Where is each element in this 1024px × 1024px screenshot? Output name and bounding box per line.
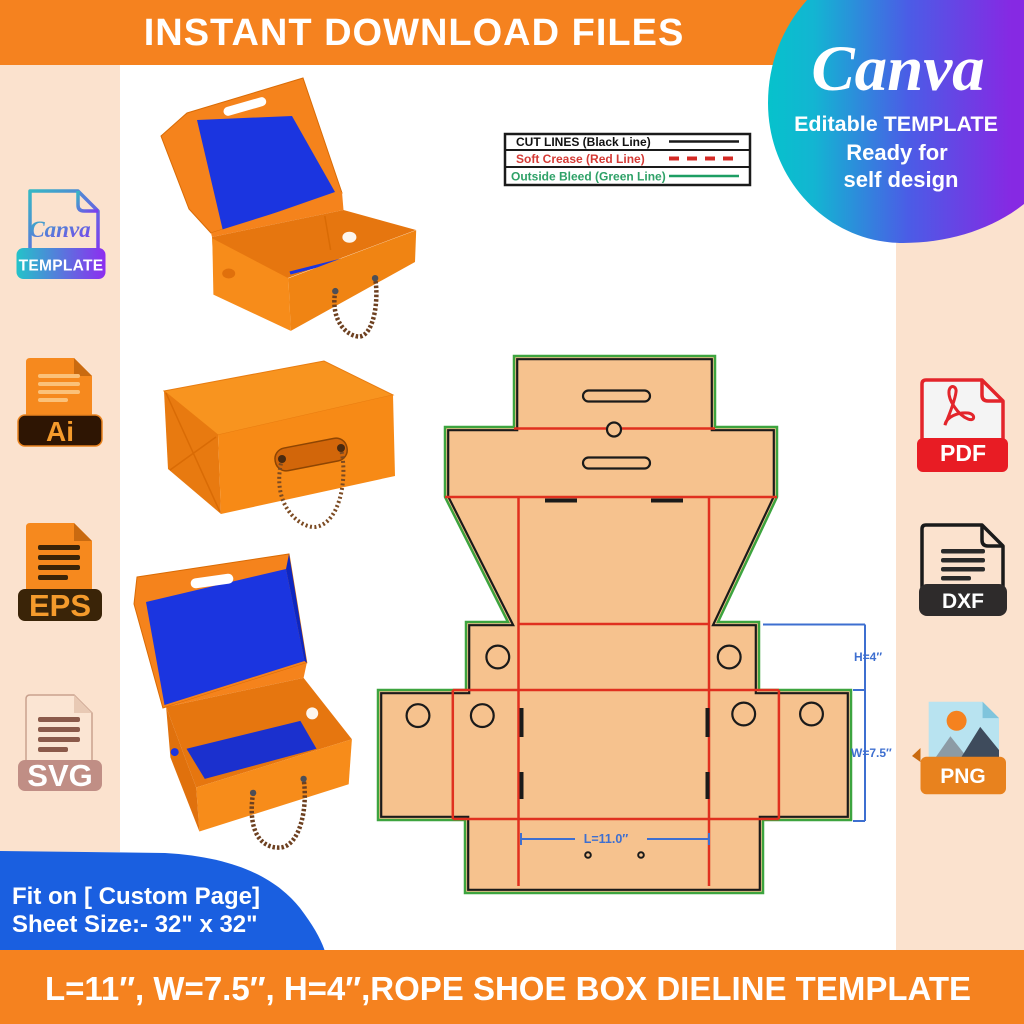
svg-text:L=11.0″: L=11.0″ (584, 832, 629, 846)
svg-text:Outside Bleed (Green Line): Outside Bleed (Green Line) (511, 170, 666, 184)
svg-text:SVG: SVG (27, 758, 92, 793)
svg-text:CUT LINES (Black Line): CUT LINES (Black Line) (516, 135, 651, 149)
svg-text:Soft Crease (Red Line): Soft Crease (Red Line) (516, 152, 645, 166)
svg-text:L=11″, W=7.5″, H=4″,ROPE SHOE: L=11″, W=7.5″, H=4″,ROPE SHOE BOX DIELIN… (45, 970, 971, 1007)
svg-text:Editable TEMPLATE: Editable TEMPLATE (794, 112, 998, 136)
svg-text:self design: self design (844, 167, 959, 192)
svg-text:PDF: PDF (940, 440, 986, 466)
svg-text:Canva: Canva (29, 217, 90, 242)
svg-text:EPS: EPS (29, 588, 91, 623)
svg-text:Ai: Ai (46, 416, 74, 447)
svg-text:Ready for: Ready for (846, 140, 948, 165)
svg-text:H=4″: H=4″ (854, 650, 882, 664)
svg-text:Sheet Size:- 32" x 32": Sheet Size:- 32" x 32" (12, 911, 258, 938)
svg-text:W=7.5″: W=7.5″ (851, 746, 892, 760)
svg-text:TEMPLATE: TEMPLATE (19, 258, 104, 275)
svg-text:Fit on [ Custom Page]: Fit on [ Custom Page] (12, 883, 260, 910)
svg-text:INSTANT DOWNLOAD FILES: INSTANT DOWNLOAD FILES (144, 12, 685, 54)
svg-text:DXF: DXF (942, 590, 984, 613)
svg-text:Canva: Canva (811, 33, 984, 105)
svg-text:PNG: PNG (940, 765, 986, 788)
